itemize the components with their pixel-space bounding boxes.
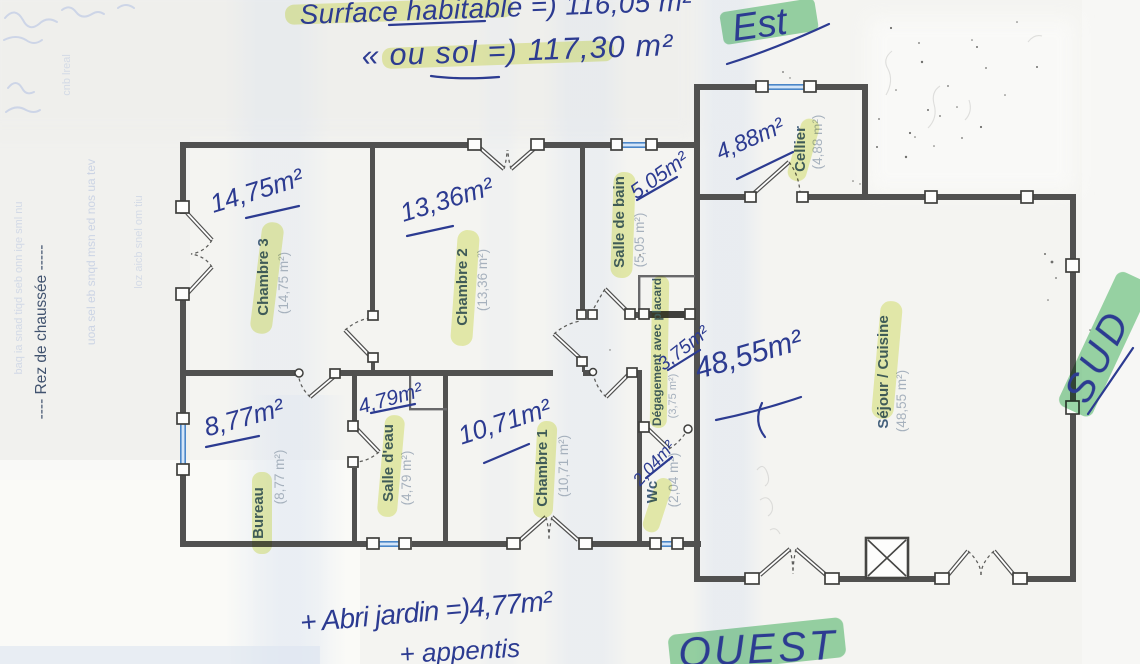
svg-text:---- Rez de chaussée -----: ---- Rez de chaussée -----	[33, 245, 50, 420]
svg-text:cnb lreal: cnb lreal	[61, 54, 73, 96]
svg-text:+ appentis: + appentis	[399, 633, 521, 664]
svg-text:(5,05 m²): (5,05 m²)	[632, 213, 647, 268]
svg-text:uoa sel eb snqd msn ed nos ua: uoa sel eb snqd msn ed nos ua tev	[84, 159, 98, 345]
svg-text:(3,75 m²): (3,75 m²)	[667, 374, 679, 419]
svg-text:(8,77 m²): (8,77 m²)	[272, 450, 287, 505]
svg-text:OUEST: OUEST	[677, 621, 839, 664]
svg-text:(10,71 m²): (10,71 m²)	[556, 435, 571, 497]
svg-text:baq ia snad tiqd seb onn iqe s: baq ia snad tiqd seb onn iqe sml nu	[13, 201, 25, 374]
svg-text:loz aicb snel om tiu: loz aicb snel om tiu	[133, 195, 145, 289]
svg-text:Est: Est	[729, 0, 791, 49]
